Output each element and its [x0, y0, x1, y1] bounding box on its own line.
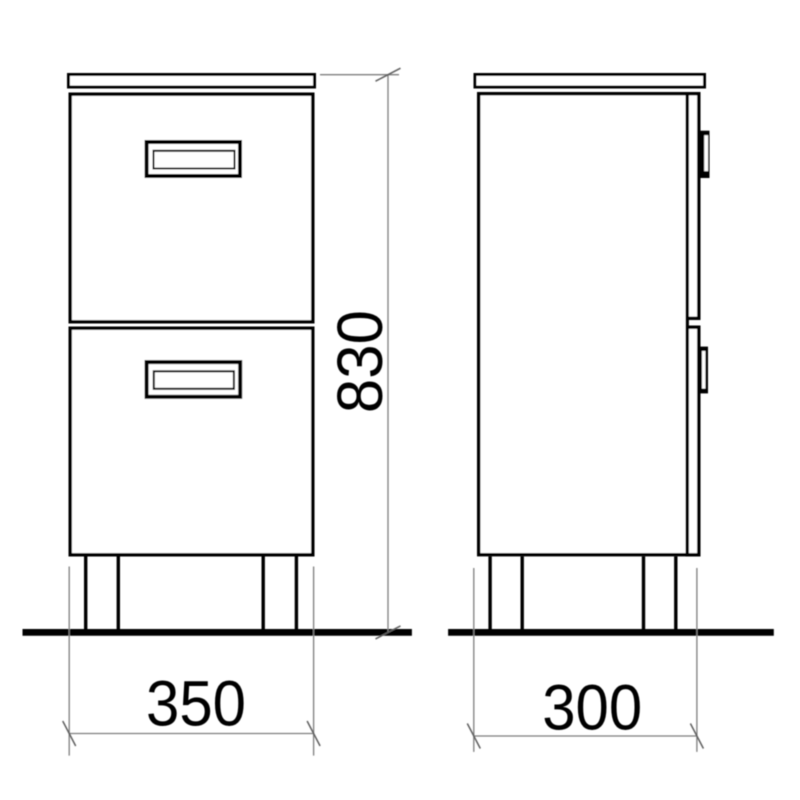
svg-text:830: 830: [324, 310, 396, 413]
svg-text:300: 300: [542, 672, 642, 744]
svg-text:350: 350: [146, 668, 246, 740]
